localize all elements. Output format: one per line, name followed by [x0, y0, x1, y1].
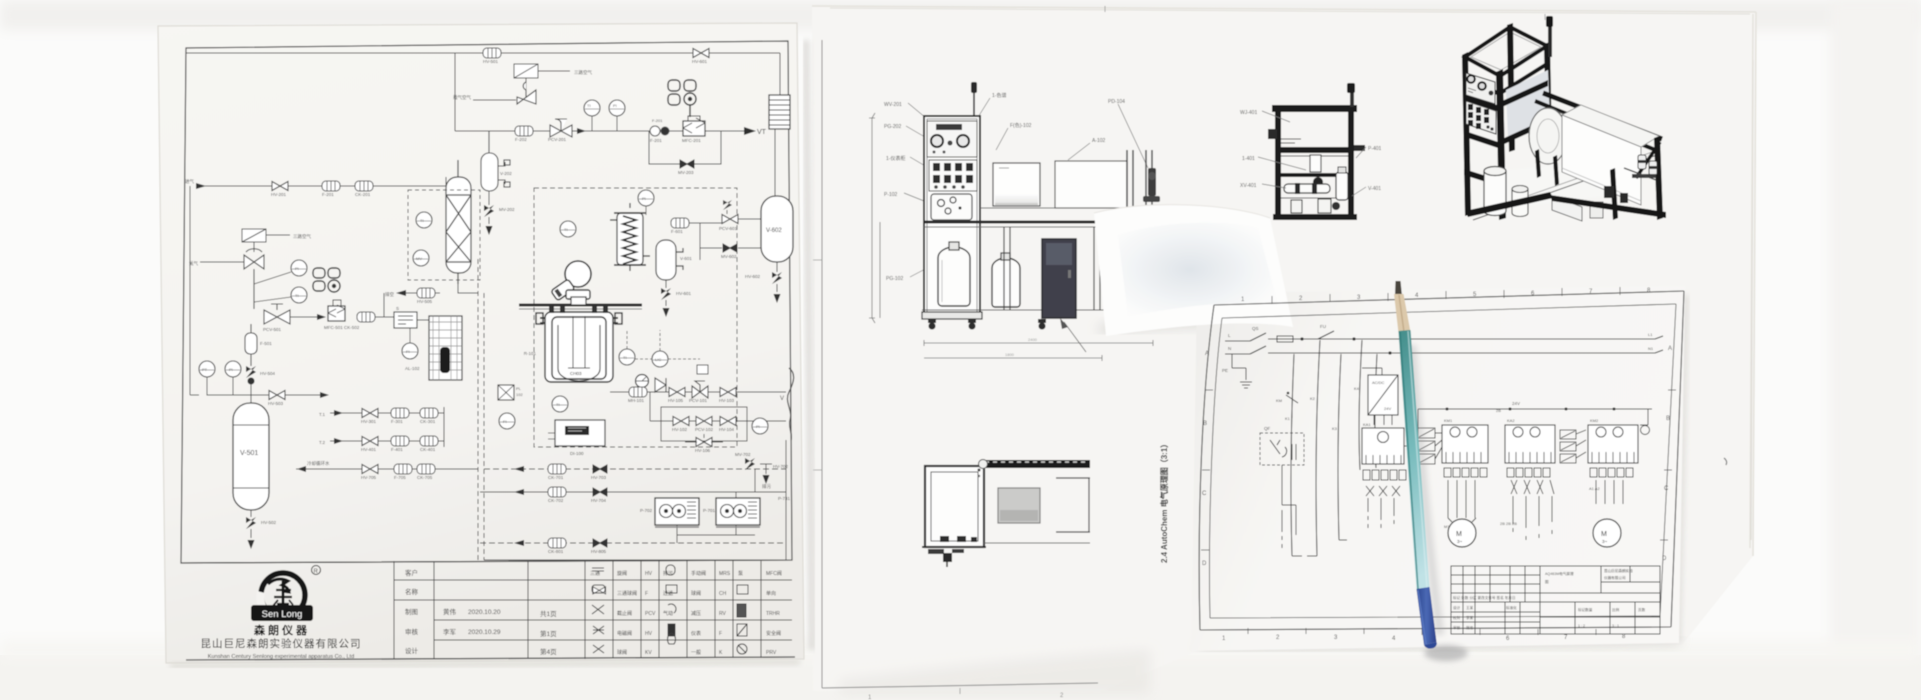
svg-text:黄伟: 黄伟	[443, 607, 457, 616]
svg-text:减压: 减压	[691, 610, 701, 617]
svg-text:VT: VT	[757, 129, 767, 136]
svg-text:KM2: KM2	[1590, 418, 1599, 423]
svg-text:F-202: F-202	[515, 137, 527, 142]
svg-text:MV: MV	[416, 256, 422, 261]
svg-text:KM: KM	[1276, 398, 1282, 403]
svg-text:D: D	[1662, 556, 1667, 562]
svg-text:名称: 名称	[405, 587, 419, 596]
svg-text:C: C	[1664, 486, 1669, 492]
svg-text:PI: PI	[642, 196, 646, 201]
svg-text:TI: TI	[564, 227, 568, 232]
svg-text:F-601: F-601	[671, 229, 683, 234]
svg-text:PE: PE	[1222, 368, 1228, 373]
svg-text:AQ463M电气原理: AQ463M电气原理	[1545, 571, 1574, 576]
svg-text:王某: 王某	[1466, 605, 1474, 610]
svg-text:CH: CH	[719, 591, 727, 597]
svg-text:2B: 2B	[1496, 408, 1501, 413]
svg-text:P-401: P-401	[1368, 146, 1382, 152]
svg-text:K4: K4	[1354, 386, 1360, 391]
svg-text:FI: FI	[406, 349, 410, 354]
svg-text:AC/DC: AC/DC	[1372, 380, 1385, 385]
svg-text:PT: PT	[202, 367, 208, 372]
svg-text:TRHR: TRHR	[766, 611, 780, 617]
svg-text:MRS: MRS	[719, 571, 731, 577]
svg-text:FI: FI	[503, 419, 507, 424]
svg-text:L1: L1	[1648, 332, 1653, 337]
svg-text:HV-105: HV-105	[668, 398, 684, 403]
svg-text:比例: 比例	[1612, 607, 1620, 612]
svg-text:PI: PI	[613, 103, 617, 108]
svg-text:QF: QF	[1264, 426, 1271, 431]
svg-text:MFC-501 CK-502: MFC-501 CK-502	[324, 325, 360, 330]
svg-text:MV-203: MV-203	[678, 170, 694, 175]
svg-text:MFC-201: MFC-201	[682, 138, 701, 143]
svg-text:D: D	[1202, 561, 1207, 567]
svg-text:24V: 24V	[1512, 401, 1520, 406]
svg-text:昆山巨尼森朗实验: 昆山巨尼森朗实验	[1604, 568, 1633, 573]
svg-text:1-仪表柜: 1-仪表柜	[886, 155, 905, 162]
svg-text:CK-705: CK-705	[417, 475, 433, 480]
svg-text:HV-505: HV-505	[417, 299, 433, 304]
svg-text:T.2: T.2	[319, 440, 326, 445]
svg-text:制图: 制图	[405, 607, 418, 616]
svg-text:A: A	[1205, 351, 1209, 357]
svg-text:P-701: P-701	[703, 508, 716, 513]
svg-text:CK-702: CK-702	[548, 498, 564, 503]
svg-text:气动: 气动	[663, 610, 673, 617]
svg-text:N: N	[1228, 346, 1231, 351]
svg-text:PRV: PRV	[766, 650, 777, 656]
svg-text:TI: TI	[556, 402, 560, 407]
svg-text:F-201: F-201	[322, 192, 334, 197]
svg-text:CK-301: CK-301	[420, 419, 436, 424]
svg-text:F-501: F-501	[260, 341, 272, 346]
svg-text:WJ-401: WJ-401	[1240, 110, 1257, 116]
svg-text:PG-102: PG-102	[886, 276, 903, 282]
svg-text:PD-104: PD-104	[1108, 99, 1125, 105]
svg-text:HV-503: HV-503	[268, 401, 284, 406]
svg-text:TI: TI	[623, 355, 627, 360]
svg-text:3~: 3~	[1602, 539, 1608, 544]
svg-text:标记数量: 标记数量	[1578, 607, 1593, 612]
svg-text:第4页: 第4页	[540, 647, 557, 656]
svg-text:MV-202: MV-202	[499, 207, 515, 212]
svg-text:3 : 1: 3 : 1	[1612, 624, 1619, 628]
svg-text:1 : 2: 1 : 2	[1578, 624, 1585, 628]
svg-text:P-731: P-731	[778, 496, 791, 501]
svg-text:HV-106: HV-106	[695, 448, 711, 453]
svg-text:HV-703: HV-703	[591, 475, 607, 480]
svg-text:HV-103: HV-103	[719, 398, 735, 403]
svg-text:B: B	[1203, 421, 1207, 427]
svg-text:KA2: KA2	[1507, 418, 1515, 423]
svg-text:PCV-501: PCV-501	[263, 327, 282, 332]
svg-text:泵: 泵	[738, 571, 743, 577]
svg-text:MV-602: MV-602	[721, 254, 737, 259]
svg-text:24V: 24V	[1384, 406, 1391, 411]
svg-text:Sen Long: Sen Long	[262, 609, 303, 620]
svg-text:HV-501: HV-501	[483, 59, 499, 64]
svg-text:V-601: V-601	[680, 256, 692, 261]
svg-text:HV-805: HV-805	[591, 549, 607, 554]
svg-text:PCV: PCV	[645, 611, 656, 617]
svg-text:WV-201: WV-201	[884, 102, 902, 108]
svg-text:TI: TI	[420, 218, 424, 223]
svg-text:HV-401: HV-401	[361, 447, 377, 452]
svg-text:TI: TI	[295, 293, 299, 298]
svg-text:1-色谱: 1-色谱	[992, 92, 1006, 99]
svg-text:2B 2B 2B: 2B 2B 2B	[1500, 521, 1517, 526]
svg-text:第1页: 第1页	[540, 629, 557, 638]
svg-text:电磁阀: 电磁阀	[617, 630, 632, 637]
svg-text:设计: 设计	[1453, 605, 1461, 610]
svg-text:2.4 AutoChem 电气原理图（3:1）: 2.4 AutoChem 电气原理图（3:1）	[1159, 440, 1169, 563]
svg-text:F: F	[719, 631, 722, 637]
svg-text:Kunshan Century Senlong experi: Kunshan Century Senlong experimental app…	[208, 654, 354, 660]
svg-text:仪器有限公司: 仪器有限公司	[1604, 575, 1626, 580]
svg-text:PCV-101: PCV-101	[689, 398, 708, 403]
svg-text:F-201: F-201	[650, 138, 662, 143]
svg-text:HV: HV	[645, 631, 653, 637]
svg-text:DI-100: DI-100	[570, 451, 584, 456]
svg-text:F-301: F-301	[391, 419, 403, 424]
svg-text:安全阀: 安全阀	[766, 630, 781, 637]
svg-text:图: 图	[1545, 580, 1549, 584]
svg-text:V-401: V-401	[1368, 186, 1381, 192]
svg-text:球阀: 球阀	[691, 590, 701, 597]
svg-text:V-202: V-202	[500, 171, 512, 176]
svg-text:V-501: V-501	[240, 450, 258, 457]
svg-text:PG-202: PG-202	[884, 124, 901, 130]
svg-text:M: M	[1601, 531, 1607, 538]
svg-text:进气: 进气	[185, 178, 194, 185]
svg-text:单向: 单向	[766, 590, 776, 597]
svg-text:CH03: CH03	[570, 371, 582, 376]
svg-text:F-705: F-705	[394, 475, 406, 480]
svg-text:三路空气: 三路空气	[574, 69, 592, 76]
svg-text:MH-101: MH-101	[628, 398, 645, 403]
svg-text:截止阀: 截止阀	[617, 610, 632, 617]
svg-text:AL-102: AL-102	[405, 366, 420, 371]
svg-text:CK-801: CK-801	[548, 549, 564, 554]
svg-text:三通球阀: 三通球阀	[617, 590, 637, 597]
svg-text:页数: 页数	[1638, 607, 1646, 612]
svg-text:XV-401: XV-401	[1240, 183, 1257, 189]
svg-text:C: C	[1202, 491, 1207, 497]
svg-text:手动阀: 手动阀	[691, 570, 706, 577]
svg-text:森朗仪器: 森朗仪器	[254, 623, 310, 637]
svg-text:F-201: F-201	[652, 118, 663, 123]
svg-text:3~: 3~	[1457, 539, 1463, 544]
svg-text:CK-701: CK-701	[548, 475, 564, 480]
svg-text:MV-702: MV-702	[735, 452, 751, 457]
svg-text:RV: RV	[719, 611, 727, 617]
svg-text:载气空气: 载气空气	[453, 94, 471, 101]
svg-text:PL: PL	[516, 386, 522, 391]
svg-text:排污: 排污	[663, 570, 673, 577]
svg-text:仪表: 仪表	[691, 630, 701, 637]
svg-text:R-101: R-101	[524, 351, 537, 356]
svg-text:HV-602: HV-602	[745, 274, 761, 279]
svg-text:1-401: 1-401	[1242, 156, 1255, 162]
svg-text:M: M	[1456, 531, 1462, 538]
svg-text:昆山巨尼森朗实验仪器有限公司: 昆山巨尼森朗实验仪器有限公司	[201, 637, 362, 650]
svg-text:标准化: 标准化	[1506, 605, 1517, 610]
svg-text:F-401: F-401	[391, 447, 403, 452]
svg-text:B: B	[1666, 416, 1670, 422]
svg-text:批准: 批准	[1466, 625, 1474, 630]
svg-text:HV-601: HV-601	[692, 59, 708, 64]
svg-text:1800: 1800	[1005, 352, 1015, 357]
svg-text:QS: QS	[1252, 326, 1259, 331]
svg-text:审核: 审核	[1453, 625, 1461, 630]
svg-text:一般: 一般	[691, 649, 701, 656]
svg-text:A-102: A-102	[1092, 138, 1106, 144]
svg-text:校对: 校对	[1453, 615, 1461, 620]
svg-text:李军: 李军	[443, 627, 457, 636]
svg-text:冷却循环水: 冷却循环水	[307, 460, 330, 467]
svg-text:李某: 李某	[1466, 615, 1474, 620]
svg-text:T.1: T.1	[319, 412, 326, 417]
svg-text:KM1: KM1	[1444, 418, 1453, 423]
svg-text:KV: KV	[645, 650, 652, 656]
svg-text:PCV-102: PCV-102	[695, 427, 714, 432]
svg-text:PCV-201: PCV-201	[548, 137, 567, 142]
svg-text:设计: 设计	[405, 646, 419, 655]
svg-text:HV: HV	[645, 571, 653, 577]
svg-text:K3: K3	[1332, 426, 1338, 431]
svg-text:HV-504: HV-504	[260, 371, 276, 376]
svg-text:K2: K2	[1310, 396, 1316, 401]
svg-text:CK-201: CK-201	[355, 192, 371, 197]
svg-text:共1页: 共1页	[540, 609, 557, 618]
svg-text:V-602: V-602	[766, 228, 782, 234]
svg-text:排空: 排空	[385, 291, 394, 298]
svg-text:HV-601: HV-601	[676, 291, 692, 296]
svg-text:三路空气: 三路空气	[293, 233, 311, 240]
svg-text:KA1: KA1	[1363, 422, 1371, 427]
svg-text:HV-704: HV-704	[591, 498, 607, 503]
svg-text:HV-502: HV-502	[261, 520, 277, 525]
svg-text:MFC阀: MFC阀	[766, 570, 782, 577]
svg-text:FU: FU	[1320, 324, 1326, 329]
svg-text:HV-301: HV-301	[361, 419, 377, 424]
svg-text:TI: TI	[587, 103, 591, 108]
svg-text:2020.10.20: 2020.10.20	[468, 609, 501, 616]
svg-text:HV-104: HV-104	[719, 427, 735, 432]
svg-text:A: A	[1668, 346, 1672, 352]
svg-text:审核: 审核	[405, 627, 419, 636]
svg-text:2400: 2400	[1028, 337, 1038, 342]
svg-text:N1: N1	[1648, 346, 1654, 351]
svg-text:102: 102	[516, 392, 523, 397]
svg-text:P-702: P-702	[640, 508, 653, 513]
svg-text:客户: 客户	[405, 568, 418, 577]
svg-text:K1: K1	[1285, 416, 1291, 421]
svg-text:S: S	[396, 306, 399, 311]
svg-text:V: V	[780, 396, 784, 402]
svg-text:HV-705: HV-705	[361, 475, 377, 480]
svg-text:PCV-601: PCV-601	[719, 226, 738, 231]
svg-text:F(色)-102: F(色)-102	[1010, 122, 1032, 129]
svg-text:LIC: LIC	[655, 357, 661, 362]
svg-text:P-102: P-102	[884, 192, 898, 198]
svg-text:F: F	[645, 591, 648, 597]
svg-text:标记 处数 分区 更改文件号 签名 年月日: 标记 处数 分区 更改文件号 签名 年月日	[1453, 595, 1516, 600]
svg-text:旋阀: 旋阀	[617, 570, 627, 577]
svg-text:PI: PI	[229, 367, 233, 372]
svg-text:HV-102: HV-102	[672, 427, 688, 432]
svg-text:PI: PI	[295, 266, 299, 271]
svg-text:排污: 排污	[762, 483, 771, 490]
svg-text:CK-401: CK-401	[420, 447, 436, 452]
svg-text:2020.10.29: 2020.10.29	[468, 629, 501, 636]
svg-text:R: R	[314, 569, 319, 575]
svg-text:球阀: 球阀	[617, 649, 627, 656]
svg-text:HV-201: HV-201	[271, 192, 287, 197]
svg-text:PI: PI	[756, 424, 760, 429]
svg-text:A1 A2: A1 A2	[1589, 486, 1600, 491]
svg-text:M1: M1	[1444, 524, 1450, 529]
